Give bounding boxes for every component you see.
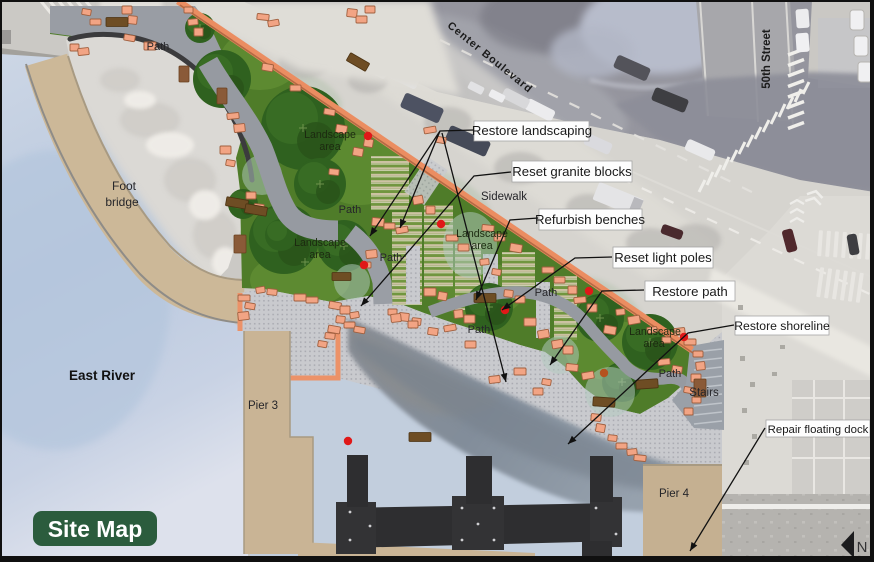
svg-text:Restore shoreline: Restore shoreline [734,319,830,333]
svg-text:Path: Path [535,287,558,299]
svg-text:Site Map: Site Map [48,516,143,542]
svg-text:Pier 4: Pier 4 [659,488,690,500]
svg-text:Stairs: Stairs [689,387,719,399]
svg-text:Reset light poles: Reset light poles [614,250,712,265]
svg-text:Landscape: Landscape [629,326,681,338]
svg-text:Restore landscaping: Restore landscaping [472,123,592,138]
svg-text:East River: East River [69,368,136,383]
svg-text:Foot: Foot [112,179,137,193]
svg-text:area: area [471,240,492,252]
svg-text:Path: Path [380,252,403,264]
svg-text:Landscape: Landscape [456,228,508,240]
svg-text:Sidewalk: Sidewalk [481,191,527,203]
svg-text:area: area [309,249,330,261]
svg-text:Landscape: Landscape [304,129,356,141]
svg-text:Path: Path [468,324,491,336]
svg-text:Landscape: Landscape [294,237,346,249]
svg-text:Restore path: Restore path [652,284,728,299]
svg-text:Path: Path [147,41,170,53]
svg-text:bridge: bridge [105,195,139,209]
svg-text:area: area [319,141,340,153]
svg-text:N: N [857,539,868,556]
svg-text:area: area [643,338,664,350]
svg-text:Path: Path [659,368,682,380]
svg-text:Reset granite blocks: Reset granite blocks [512,164,632,179]
svg-text:50th Street: 50th Street [761,29,773,89]
svg-text:Pier 3: Pier 3 [248,400,278,412]
svg-text:Refurbish benches: Refurbish benches [535,212,645,227]
svg-text:Path: Path [339,204,362,216]
svg-text:Repair floating dock: Repair floating dock [768,424,869,436]
